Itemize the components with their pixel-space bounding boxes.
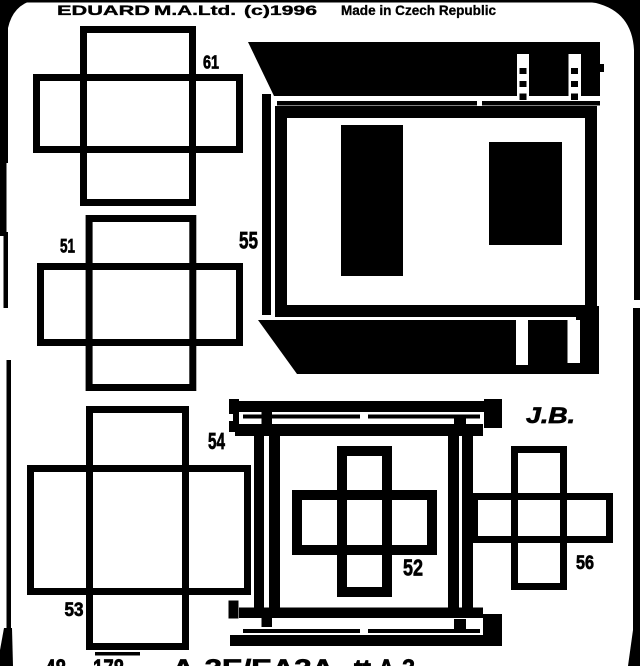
svg-text:(c)1996: (c)1996: [244, 2, 317, 18]
svg-text:51: 51: [60, 236, 75, 258]
svg-text:EDUARD: EDUARD: [57, 2, 150, 18]
svg-text:M.A.Ltd.: M.A.Ltd.: [154, 2, 236, 18]
svg-text:A-3E/EA3A: A-3E/EA3A: [172, 655, 334, 666]
svg-text:56: 56: [576, 552, 594, 574]
svg-text:52: 52: [403, 555, 423, 581]
svg-text:Made in Czech Republic: Made in Czech Republic: [341, 3, 496, 18]
svg-text:J.B.: J.B.: [526, 403, 575, 428]
svg-text:A-3: A-3: [378, 655, 415, 666]
svg-text:61: 61: [203, 52, 219, 73]
svg-text:tt: tt: [354, 655, 372, 666]
svg-text:54: 54: [208, 428, 225, 454]
svg-text:178: 178: [93, 655, 124, 666]
svg-text:53: 53: [65, 599, 84, 621]
svg-text:48: 48: [45, 655, 66, 666]
svg-text:55: 55: [239, 228, 258, 255]
